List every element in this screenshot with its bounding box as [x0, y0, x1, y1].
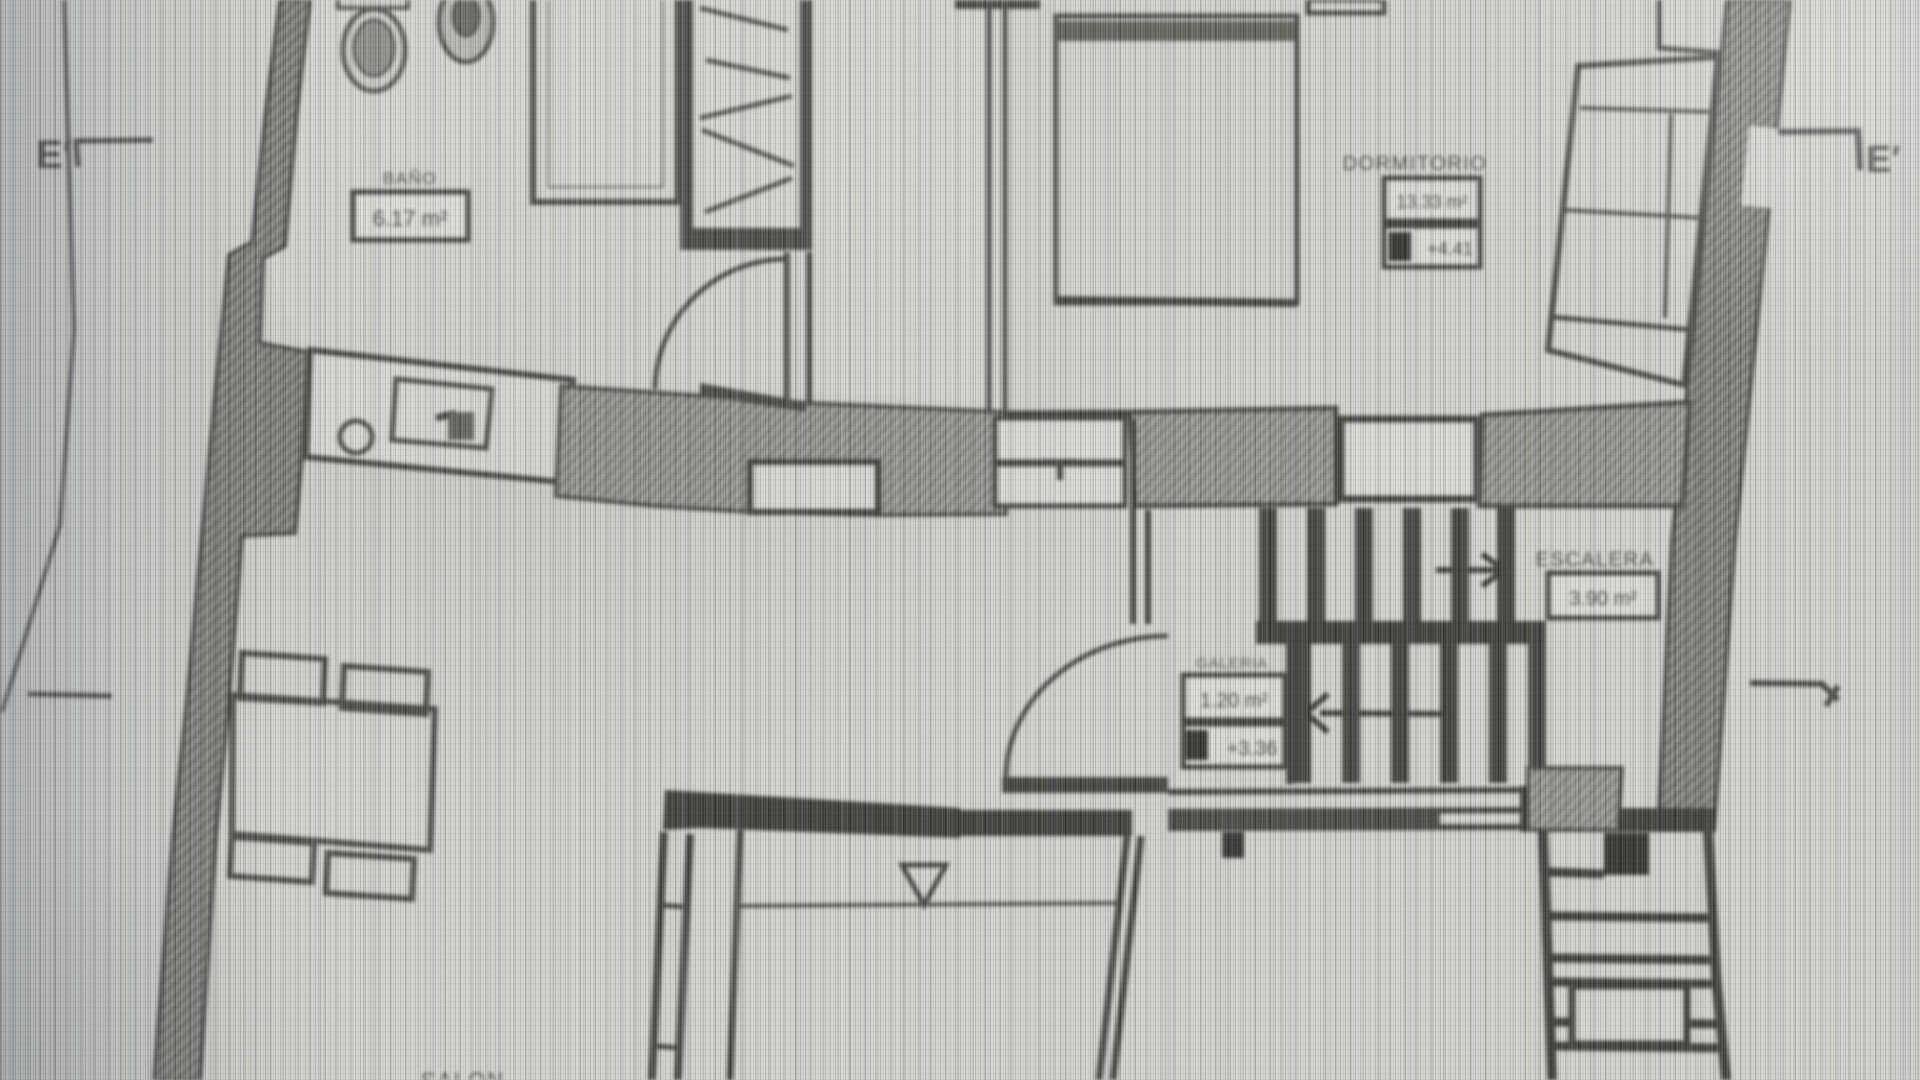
svg-text:GALERIA: GALERIA	[1196, 655, 1268, 672]
svg-text:BAÑO: BAÑO	[383, 169, 437, 188]
svg-text:DORMITORIO: DORMITORIO	[1343, 153, 1488, 175]
svg-text:3.90 m²: 3.90 m²	[1569, 588, 1637, 610]
svg-text:1.20 m²: 1.20 m²	[1200, 690, 1268, 712]
svg-text:ESCALERA: ESCALERA	[1536, 549, 1655, 571]
svg-text:SALON: SALON	[421, 1068, 506, 1080]
svg-text:13.33 m²: 13.33 m²	[1396, 192, 1467, 212]
svg-text:+3.36: +3.36	[1227, 738, 1278, 760]
svg-text:E′: E′	[1866, 139, 1900, 181]
svg-text:E′: E′	[36, 133, 72, 177]
svg-text:6.17 m²: 6.17 m²	[373, 206, 448, 231]
svg-text:+4.41: +4.41	[1427, 239, 1473, 259]
